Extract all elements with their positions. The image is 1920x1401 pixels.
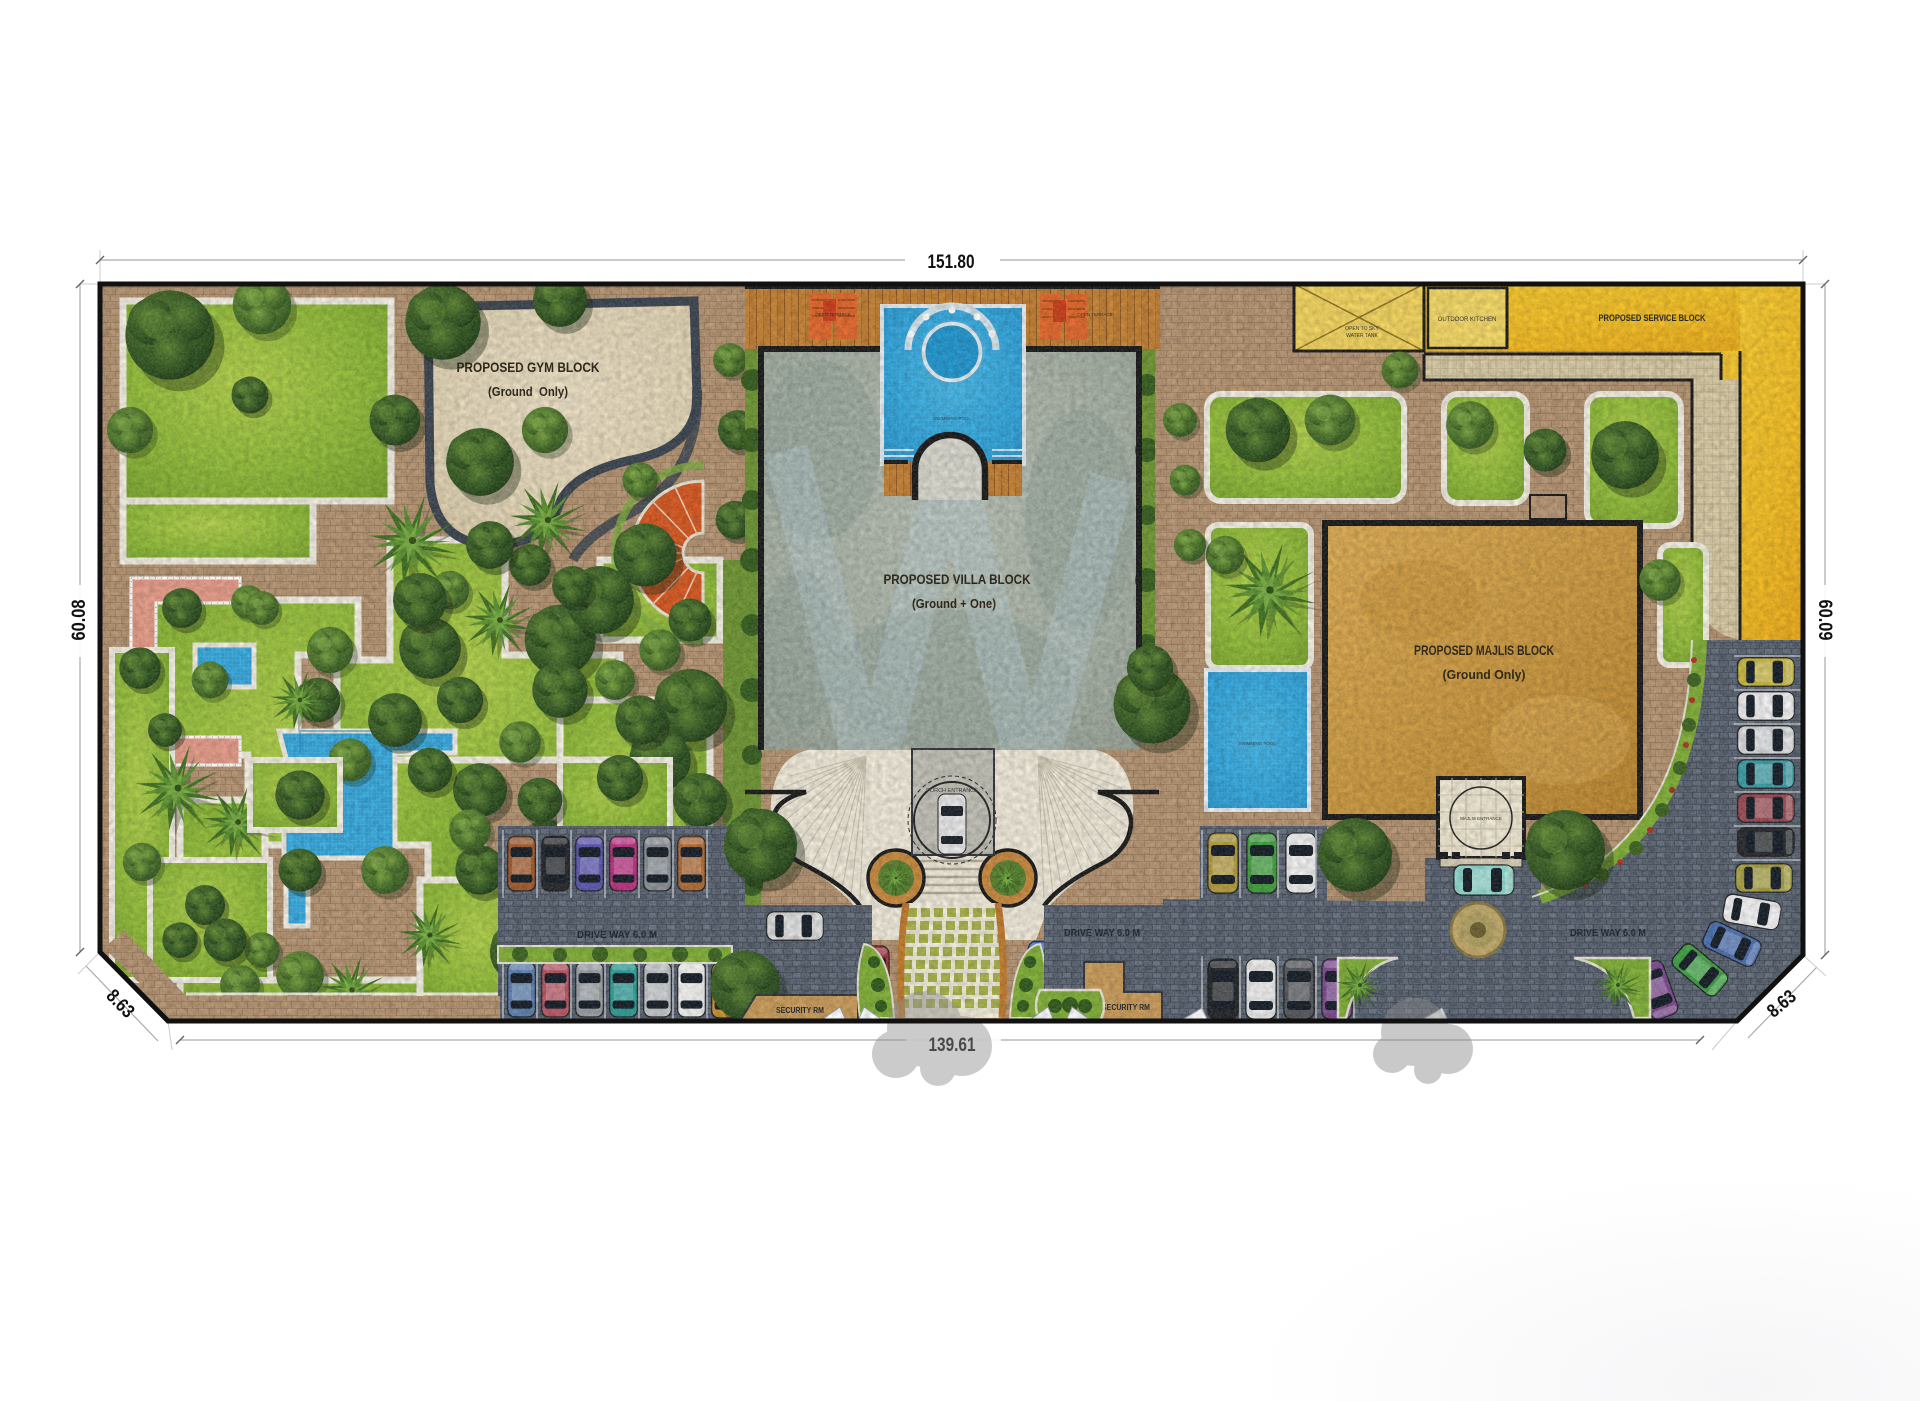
svg-text:60.08: 60.08	[69, 600, 90, 641]
svg-text:60.09: 60.09	[1814, 600, 1835, 641]
svg-text:151.80: 151.80	[928, 252, 975, 273]
